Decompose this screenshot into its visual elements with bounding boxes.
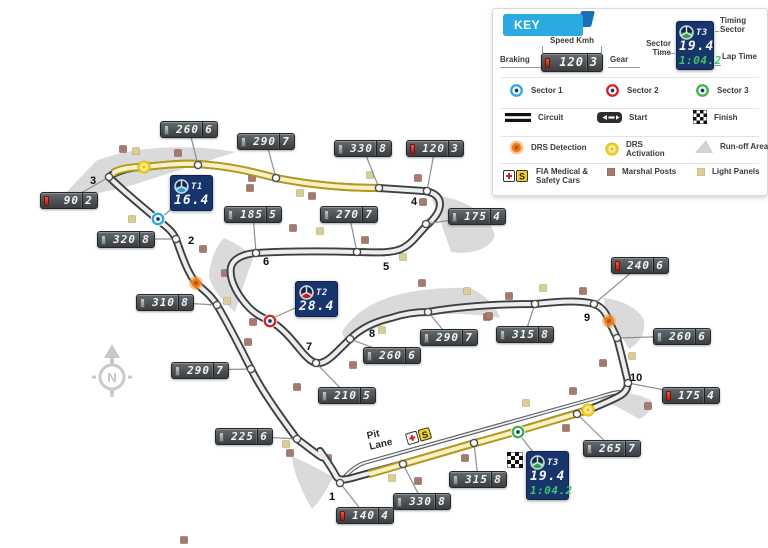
key-item-circuit: Circuit <box>505 113 594 122</box>
connector-line <box>427 148 435 191</box>
connector-line <box>273 299 315 318</box>
connector-line <box>340 483 365 515</box>
marshal-post <box>245 339 252 346</box>
connector-line <box>474 443 478 479</box>
key-sector-time-label: Sector Time <box>627 39 671 57</box>
marshal-post-icon <box>607 168 615 176</box>
marshal-post <box>420 199 427 206</box>
light-panel <box>523 400 530 407</box>
light-panel <box>133 148 140 155</box>
key-item-sector2: Sector 2 <box>605 83 683 98</box>
marshal-post <box>290 225 297 232</box>
track-node-dot <box>353 248 360 255</box>
light-panel <box>297 190 304 197</box>
runoff-areas <box>57 147 651 509</box>
marshal-post <box>570 388 577 395</box>
track-node-dot <box>470 439 477 446</box>
svg-text:N: N <box>107 370 116 385</box>
connector-line <box>200 369 251 370</box>
key-item-light: Light Panels <box>697 167 768 176</box>
track-node-dot <box>105 173 112 180</box>
connector-line <box>577 414 612 448</box>
connector-line <box>349 214 357 252</box>
marshal-post <box>563 425 570 432</box>
marshal-post <box>120 146 127 153</box>
key-item-drs-activation: DRS Activation <box>605 140 682 158</box>
marshal-post <box>350 362 357 369</box>
light-panel <box>283 441 290 448</box>
light-panel <box>629 353 636 360</box>
connector-line <box>428 312 449 337</box>
track-node-dot <box>531 300 538 307</box>
marshal-post <box>600 360 607 367</box>
marshal-post <box>462 455 469 462</box>
track-node-dot <box>346 335 353 342</box>
track-node-dot <box>399 460 406 467</box>
key-header: KEY <box>503 14 583 36</box>
sector1-icon <box>509 83 524 98</box>
marshal-post <box>362 237 369 244</box>
light-panel <box>464 288 471 295</box>
speed-value: 120 <box>550 54 587 71</box>
connector-line <box>244 436 297 439</box>
light-panel <box>540 285 547 292</box>
track-node-dot <box>422 220 429 227</box>
connector-line <box>363 148 379 188</box>
sector3-icon <box>695 83 710 98</box>
circuit-map-page: N Pit Lane 26062907330812039023208185527… <box>0 0 768 548</box>
marshal-post <box>506 293 513 300</box>
gear-value: 3 <box>587 54 599 71</box>
marshal-post <box>415 478 422 485</box>
marshal-post <box>200 246 207 253</box>
marshal-post <box>580 288 587 295</box>
key-item-drs-detection: DRS Detection <box>509 140 587 155</box>
connector-line <box>519 434 546 469</box>
light-panel <box>129 216 136 223</box>
key-item-sector1: Sector 1 <box>509 83 587 98</box>
key-speed-kmh-label: Speed Kmh <box>533 36 611 45</box>
runoff-area <box>57 147 236 202</box>
key-item-marshal: Marshal Posts <box>607 167 678 176</box>
connector-line <box>628 383 691 395</box>
connector-line <box>253 214 256 253</box>
track-outline <box>109 164 628 480</box>
track-node-dot <box>424 308 431 315</box>
light-panel-icon <box>697 168 705 176</box>
connector-line <box>165 302 217 305</box>
circuit-icon <box>505 113 531 122</box>
key-item-finish: Finish <box>693 110 768 124</box>
key-timing-sector-label: Timing Sector <box>720 16 764 34</box>
marshal-post <box>250 319 257 326</box>
key-item-fia: S FIA Medical & Safety Cars <box>503 167 592 185</box>
track-node-dot <box>336 479 343 486</box>
connector-line <box>525 304 535 334</box>
track-node-dot <box>252 249 259 256</box>
marshal-post <box>175 150 182 157</box>
lap-time-value: 1:04.2 <box>679 54 711 67</box>
light-panel <box>317 228 324 235</box>
drs-detection-icon <box>509 140 524 155</box>
light-panel <box>400 254 407 261</box>
marshal-post <box>419 280 426 287</box>
track-node-dot <box>194 161 201 168</box>
track-node-dot <box>247 365 254 372</box>
start-icon <box>597 112 622 123</box>
svg-text:S: S <box>519 172 525 182</box>
track-node-dot <box>590 300 597 307</box>
marshal-and-light-markers <box>120 146 652 544</box>
mercedes-logo-icon <box>679 25 694 40</box>
track-node-dot <box>213 301 220 308</box>
connector-line <box>316 363 347 395</box>
key-speed-demo: 120 3 <box>541 53 603 72</box>
key-item-start: Start <box>597 112 685 123</box>
sector2-icon <box>605 83 620 98</box>
marshal-post <box>415 175 422 182</box>
marshal-post <box>645 403 652 410</box>
light-panel <box>389 475 396 482</box>
finish-flag-icon <box>693 110 707 124</box>
timing-sector-id: T3 <box>696 28 708 38</box>
key-lap-time-label: Lap Time <box>722 52 762 61</box>
track-node-dot <box>272 174 279 181</box>
compass-icon: N <box>92 344 132 397</box>
safety-car-icon: S <box>503 169 529 183</box>
key-gear-label: Gear <box>610 55 628 64</box>
connector-line <box>594 265 640 304</box>
connector-line <box>350 339 392 355</box>
marshal-post <box>294 384 301 391</box>
connector-line <box>161 193 190 218</box>
key-panel: KEY Braking Speed Kmh Gear 120 3 Sector … <box>492 8 768 196</box>
light-panel <box>224 298 231 305</box>
track-node-dot <box>172 235 179 242</box>
marshal-post <box>181 537 188 544</box>
key-item-runoff: Run-off Areas <box>695 140 768 153</box>
mercedes-logo-icon <box>679 25 694 40</box>
drs-activation-icon <box>605 142 619 156</box>
key-braking-label: Braking <box>500 55 530 64</box>
sector-time-value: 19.4 <box>679 40 711 54</box>
marshal-post <box>287 450 294 457</box>
marshal-post <box>309 193 316 200</box>
track-node-dot <box>293 435 300 442</box>
light-panel <box>379 327 386 334</box>
marshal-post <box>486 313 493 320</box>
key-item-sector3: Sector 3 <box>695 83 768 98</box>
track-node-dot <box>613 334 620 341</box>
track-node-dot <box>423 187 430 194</box>
track-node-dot <box>624 379 631 386</box>
key-timing-demo: T3 19.4 1:04.2 <box>676 21 714 70</box>
track-node-dot <box>573 410 580 417</box>
track-node-dot <box>375 184 382 191</box>
runoff-icon <box>695 140 713 153</box>
marshal-post <box>247 185 254 192</box>
track-node-dot <box>312 359 319 366</box>
